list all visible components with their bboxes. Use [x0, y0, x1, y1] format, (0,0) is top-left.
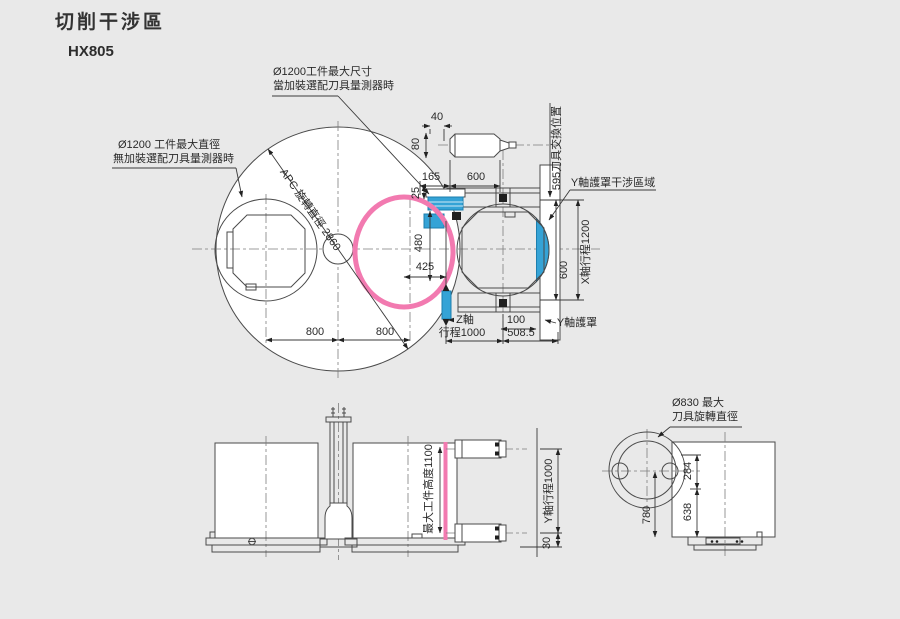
- label-z-axis: Z軸: [456, 314, 474, 326]
- label-max-size-line2: 當加裝選配刀具量測器時: [273, 80, 394, 92]
- dim-600-right: 600: [558, 261, 570, 279]
- label-max-dia-line2: 無加裝選配刀具量測器時: [113, 153, 234, 165]
- dim-508-5: 508.5: [507, 327, 535, 339]
- dim-284: 284: [682, 462, 694, 480]
- label-max-workpiece-height: 最大工件高度1100: [423, 444, 435, 534]
- label-z-travel: 行程1000: [439, 327, 485, 339]
- label-tool-dia-line1: Ø830 最大: [672, 397, 724, 409]
- dim-780: 780: [641, 506, 653, 524]
- side-view-dimensions: [520, 449, 562, 547]
- spindle-column: [320, 403, 357, 560]
- tool-rotation-view: [602, 427, 775, 556]
- label-tool-dia-line2: 刀具旋轉直徑: [672, 411, 738, 423]
- machine-body: [672, 442, 775, 537]
- dim-800-left: 800: [306, 326, 324, 338]
- spindle-top-position: [446, 440, 527, 458]
- label-y-cover-interference-zone: Y軸護罩干涉區域: [571, 177, 655, 189]
- drawing-svg: [0, 0, 900, 619]
- label-max-dia-line1: Ø1200 工件最大直徑: [118, 139, 220, 151]
- dim-100: 100: [507, 314, 525, 326]
- spindle-bottom-position: [446, 524, 527, 542]
- cutting-interference-diagram: 切削干涉區 HX805 Ø1200工件最大尺寸 當加裝選配刀具量測器時 Ø120…: [0, 0, 900, 619]
- dim-800-right: 800: [376, 326, 394, 338]
- label-tool-change-position: 595刀具交換位置: [551, 106, 563, 190]
- dim-425: 425: [416, 261, 434, 273]
- dim-600-top: 600: [467, 171, 485, 183]
- model-name: HX805: [68, 46, 114, 58]
- dim-638: 638: [682, 503, 694, 521]
- dim-165: 165: [422, 171, 440, 183]
- dim-80: 80: [410, 138, 422, 150]
- dim-y-travel: Y軸行程1000: [543, 459, 555, 524]
- label-max-size-line1: Ø1200工件最大尺寸: [273, 66, 372, 78]
- dim-25: 25: [410, 187, 422, 199]
- label-y-cover: Y軸護罩: [557, 317, 597, 329]
- dim-40: 40: [431, 111, 443, 123]
- pallet-cube-left: [215, 443, 318, 538]
- tool-silhouette: [450, 134, 516, 157]
- pallet-cube-right: [353, 443, 457, 538]
- page-title: 切削干涉區: [55, 17, 165, 29]
- dim-30: 30: [541, 537, 553, 549]
- dim-x-travel: X軸行程1200: [580, 220, 592, 285]
- dim-480: 480: [413, 234, 425, 252]
